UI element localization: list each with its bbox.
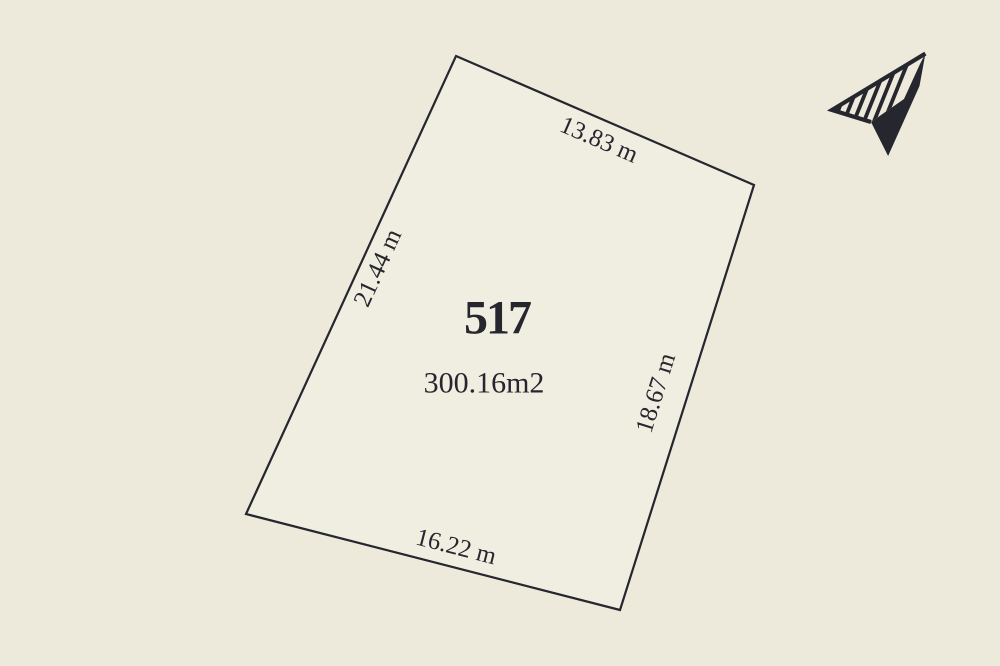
svg-text:300.16m2: 300.16m2	[424, 367, 545, 400]
svg-text:517: 517	[464, 292, 531, 345]
